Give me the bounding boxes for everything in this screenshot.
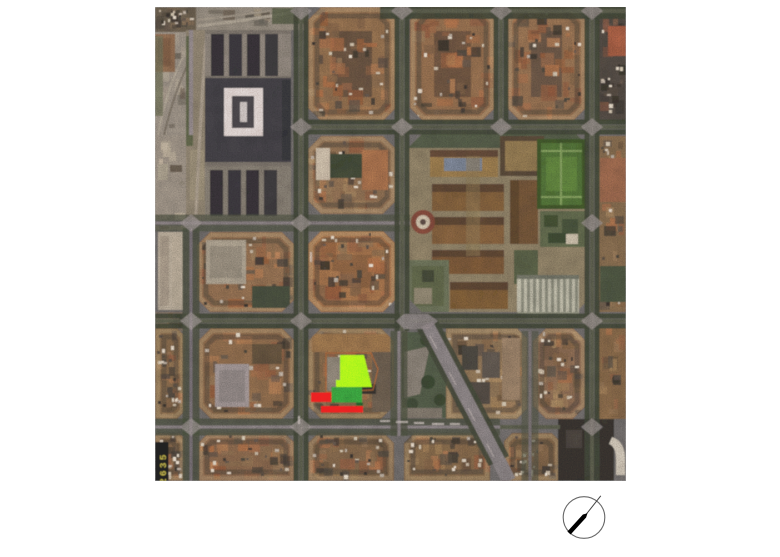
svg-text:2635: 2635 bbox=[158, 452, 169, 484]
